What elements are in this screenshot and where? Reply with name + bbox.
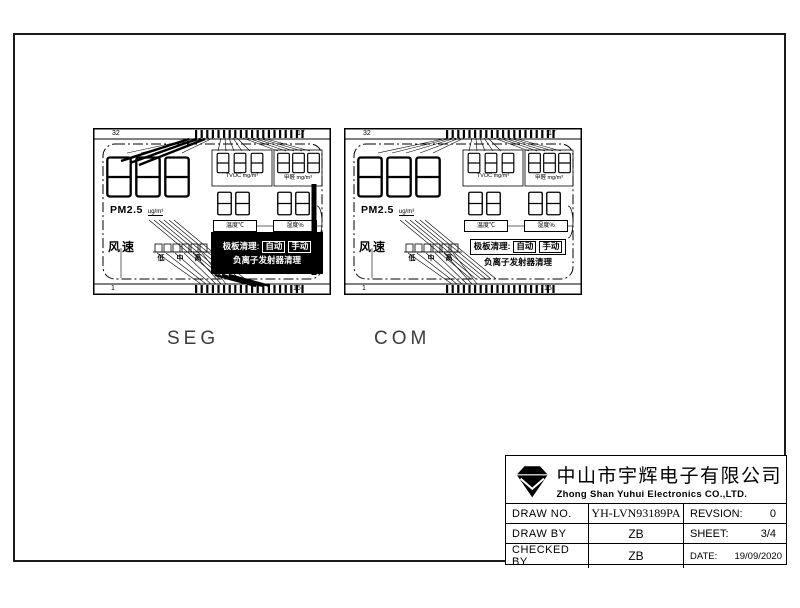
plate-clean-label: 极板清理: — [474, 242, 511, 251]
draw-no-value: YH-LVN93189PA — [588, 504, 683, 523]
pin-number-top-right: 17 — [297, 129, 305, 138]
title-block-row-checked-by: CHECKED BY ZB DATE: 19/09/2020 — [506, 543, 786, 563]
title-block-row-draw-by: DRAW BY ZB SHEET: 3/4 — [506, 523, 786, 543]
pin-number-top-right: 17 — [548, 129, 556, 138]
company-name-cn: 中山市宇辉电子有限公司 — [556, 461, 782, 488]
seg-panel: 32 17 1 16 PM2.5ug/m³ TVOC mg/m³ 甲醛 mg/m… — [93, 128, 331, 295]
tvoc-unit-label: TVOC mg/m³ — [463, 173, 523, 179]
pin-number-bottom-right: 16 — [293, 284, 301, 293]
auto-option: 自动 — [262, 241, 285, 252]
auto-option: 自动 — [513, 241, 536, 252]
ion-clean-label: 负离子发射器清理 — [484, 258, 552, 267]
fan-high-label: 高 — [192, 253, 204, 263]
revision-label: REVSION: — [690, 508, 743, 520]
fan-low-label: 低 — [406, 253, 418, 263]
date-cell: DATE: 19/09/2020 — [683, 544, 786, 568]
pm25-label: PM2.5ug/m³ — [361, 200, 414, 218]
pin-number-top-left: 32 — [112, 129, 120, 138]
checked-by-label: CHECKED BY — [506, 544, 588, 568]
sheet-cell: SHEET: 3/4 — [683, 524, 786, 543]
pin-number-bottom-left: 1 — [362, 284, 366, 293]
pin-number-bottom-right: 16 — [544, 284, 552, 293]
manual-option: 手动 — [288, 241, 311, 252]
sheet-label: SHEET: — [690, 528, 729, 540]
draw-no-label: DRAW NO. — [506, 504, 588, 523]
clean-text-block: 极板清理: 自动 手动 负离子发射器清理 — [211, 232, 323, 274]
title-block: 中山市宇辉电子有限公司 Zhong Shan Yuhui Electronics… — [505, 455, 787, 565]
fan-high-label: 高 — [443, 253, 455, 263]
tvoc-unit-label: TVOC mg/m³ — [212, 173, 272, 179]
com-caption: COM — [374, 328, 430, 350]
humidity-label: 湿度% — [524, 220, 568, 232]
draw-by-label: DRAW BY — [506, 524, 588, 543]
temperature-label: 温度℃ — [213, 220, 257, 232]
date-label: DATE: — [690, 551, 717, 562]
hcho-unit-label: 甲醛 mg/m³ — [274, 173, 322, 181]
pin-number-top-left: 32 — [363, 129, 371, 138]
fan-mid-label: 中 — [174, 253, 186, 263]
clean-text-block: 极板清理: 自动 手动 负离子发射器清理 — [462, 232, 574, 274]
seg-caption: SEG — [167, 328, 219, 350]
manual-option: 手动 — [539, 241, 562, 252]
fan-speed-label: 风速 — [108, 238, 136, 255]
com-panel: 32 17 1 16 PM2.5ug/m³ TVOC mg/m³ 甲醛 mg/m… — [344, 128, 582, 295]
temperature-label: 温度℃ — [464, 220, 508, 232]
title-block-header: 中山市宇辉电子有限公司 Zhong Shan Yuhui Electronics… — [506, 456, 786, 503]
company-name-en: Zhong Shan Yuhui Electronics CO.,LTD. — [556, 489, 782, 500]
fan-low-label: 低 — [155, 253, 167, 263]
checked-by-value: ZB — [588, 544, 683, 568]
plate-clean-label: 极板清理: — [223, 242, 260, 251]
pin-number-bottom-left: 1 — [111, 284, 115, 293]
hcho-unit-label: 甲醛 mg/m³ — [525, 173, 573, 181]
fan-mid-label: 中 — [425, 253, 437, 263]
date-value: 19/09/2020 — [734, 551, 782, 562]
humidity-label: 湿度% — [273, 220, 317, 232]
company-gem-logo-icon — [512, 461, 552, 501]
drawing-sheet: 32 17 1 16 PM2.5ug/m³ TVOC mg/m³ 甲醛 mg/m… — [0, 0, 800, 608]
pm25-label: PM2.5ug/m³ — [110, 200, 163, 218]
ion-clean-label: 负离子发射器清理 — [233, 256, 301, 265]
fan-speed-label: 风速 — [359, 238, 387, 255]
revision-value: 0 — [770, 508, 776, 520]
title-block-row-draw-no: DRAW NO. YH-LVN93189PA REVSION: 0 — [506, 503, 786, 523]
draw-by-value: ZB — [588, 524, 683, 543]
revision-cell: REVSION: 0 — [683, 504, 786, 523]
sheet-value: 3/4 — [761, 528, 776, 540]
